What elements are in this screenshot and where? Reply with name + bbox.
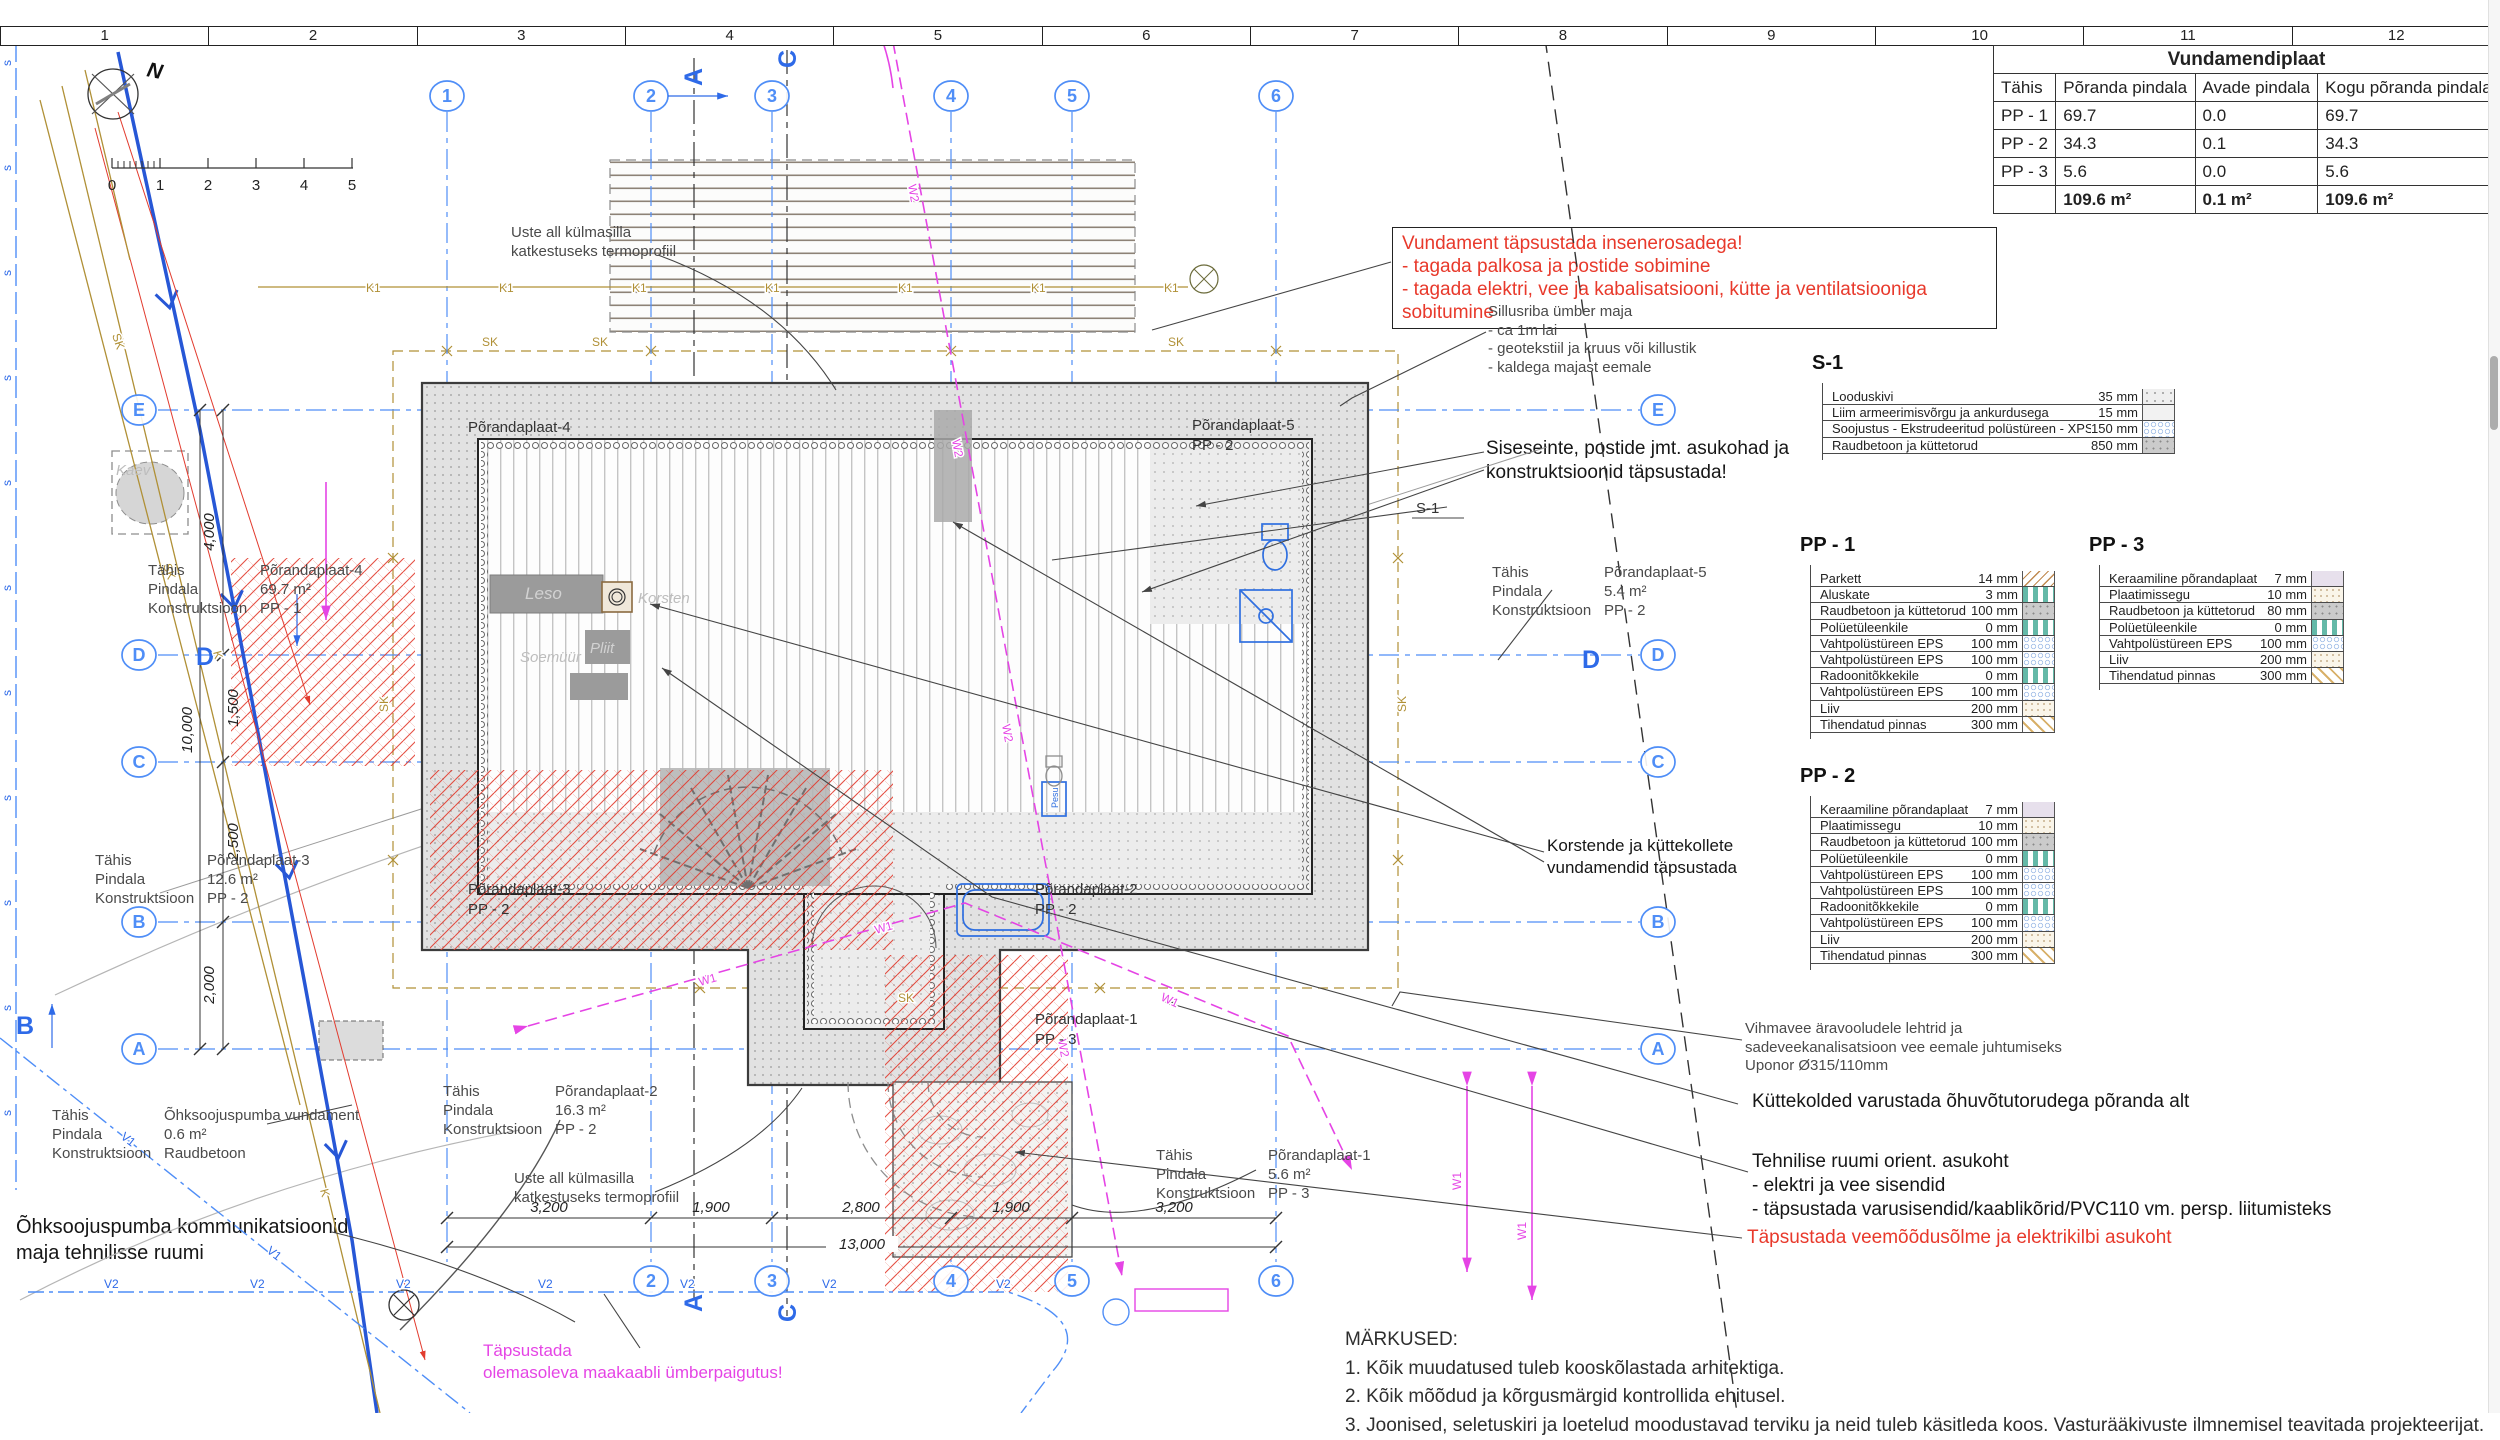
layer-row: Raudbetoon ja küttetorud850 mm: [1823, 438, 2175, 454]
north-label: N: [145, 58, 165, 84]
heat-pump-pad: [319, 1021, 383, 1060]
summary-header-row: Tähis Põranda pindala Avade pindala Kogu…: [1994, 74, 2500, 102]
grid-col-label: 6: [1271, 1271, 1281, 1291]
layer-row: Tihendatud pinnas300 mm: [1811, 717, 2055, 733]
svg-text:s: s: [0, 900, 14, 906]
slab-label-pp4: Põrandaplaat-4: [468, 419, 571, 436]
summary-totals-row: 109.6 m² 0.1 m²109.6 m²: [1994, 186, 2500, 214]
svg-text:V2: V2: [538, 1277, 553, 1291]
grid-col-label: 1: [442, 86, 452, 106]
grid-row-label: C: [133, 752, 146, 772]
room-label-soemuur: Soemüür: [520, 649, 582, 666]
material-swatch: [2142, 438, 2175, 453]
grid-col-label: 4: [946, 86, 956, 106]
material-swatch: [2142, 421, 2175, 436]
ruler-cell: 5: [833, 27, 1041, 45]
grid-col-label: 4: [946, 1271, 956, 1291]
room-label-korsten: Korsten: [638, 590, 690, 607]
summary-table-row: PP - 234.3 0.134.3: [1994, 130, 2500, 158]
grid-col-label: 5: [1067, 86, 1077, 106]
layer-row: Liiv200 mm: [1811, 701, 2055, 717]
dim-total-label: 10,000: [179, 706, 196, 753]
material-swatch: [2022, 587, 2055, 602]
scale-tick-label: 2: [204, 177, 212, 194]
ruler-cell: 10: [1875, 27, 2083, 45]
svg-text:W1: W1: [1159, 990, 1182, 1010]
material-swatch: [2022, 668, 2055, 683]
layer-row: Plaatimissegu10 mm: [2100, 587, 2344, 603]
dim-label: 2,800: [841, 1199, 880, 1216]
section-marker-c: C: [774, 50, 802, 68]
svg-text:V2: V2: [250, 1277, 265, 1291]
material-swatch: [2022, 948, 2055, 963]
dim-total-label: 13,000: [839, 1236, 886, 1253]
note-thermoprofile-bottom: Uste all külmasilla katkestuseks termopr…: [514, 1170, 679, 1207]
layer-row: Aluskate3 mm: [1811, 587, 2055, 603]
material-swatch: [2142, 405, 2175, 420]
svg-text:K1: K1: [898, 281, 913, 295]
k1-label: K1: [366, 281, 381, 295]
layer-row: Radoonitõkkekile0 mm: [1811, 668, 2055, 684]
layer-row: Vahtpolüstüreen EPS100 mm: [2100, 636, 2344, 652]
layer-row: Looduskivi35 mm: [1823, 389, 2175, 405]
layer-panel-pp2: PP - 2 Keraamiline põrandaplaat7 mm Plaa…: [1800, 765, 2052, 970]
layer-panel-s1: S-1 Looduskivi35 mm Liim armeerimisvõrgu…: [1812, 352, 2172, 460]
material-swatch: [2311, 603, 2344, 618]
svg-text:K1: K1: [632, 281, 647, 295]
layer-row: Raudbetoon ja küttetorud100 mm: [1811, 834, 2055, 850]
page-ruler: 123456789101112: [0, 26, 2500, 46]
scrollbar-thumb[interactable]: [2490, 356, 2498, 430]
grid-row-label: B: [133, 912, 146, 932]
svg-text:SK: SK: [592, 335, 608, 349]
svg-text:SK: SK: [1168, 335, 1184, 349]
svg-text:V2: V2: [396, 1277, 411, 1291]
grid-col-label: 2: [646, 1271, 656, 1291]
panel-title: PP - 1: [1800, 534, 2052, 557]
layer-row: Raudbetoon ja küttetorud100 mm: [1811, 603, 2055, 619]
scale-tick-label: 5: [348, 177, 356, 194]
layer-row: Keraamiline põrandaplaat7 mm: [1811, 802, 2055, 818]
grid-row-label: D: [133, 645, 146, 665]
material-swatch: [2022, 932, 2055, 947]
material-swatch: [2022, 915, 2055, 930]
material-swatch: [2311, 636, 2344, 651]
svg-text:s: s: [0, 480, 14, 486]
scale-tick-label: 0: [108, 177, 116, 194]
grid-col-label: 6: [1271, 86, 1281, 106]
material-swatch: [2022, 818, 2055, 833]
slab-label-pp2: Põrandaplaat-2: [1035, 881, 1138, 898]
layer-row: Plaatimissegu10 mm: [1811, 818, 2055, 834]
material-swatch: [2311, 668, 2344, 683]
scale-tick-label: 4: [300, 177, 308, 194]
material-swatch: [2022, 652, 2055, 667]
ruler-cell: 9: [1667, 27, 1875, 45]
layer-panel-pp1: PP - 1 Parkett14 mm Aluskate3 mm Raudbet…: [1800, 534, 2052, 739]
layer-row: Raudbetoon ja küttetorud80 mm: [2100, 603, 2344, 619]
room-label-pesu: Pesu: [1050, 787, 1060, 808]
svg-text:PP - 2: PP - 2: [468, 901, 509, 918]
layer-row: Vahtpolüstüreen EPS100 mm: [1811, 867, 2055, 883]
grid-row-label: D: [1652, 645, 1665, 665]
s1-callout: S-1: [1416, 500, 1439, 517]
layer-row: Parkett14 mm: [1811, 571, 2055, 587]
scale-tick-label: 3: [252, 177, 260, 194]
layer-row: Vahtpolüstüreen EPS100 mm: [1811, 652, 2055, 668]
ruler-cell: 6: [1042, 27, 1250, 45]
panel-title: PP - 2: [1800, 765, 2052, 788]
material-swatch: [2311, 620, 2344, 635]
layer-row: Liiv200 mm: [2100, 652, 2344, 668]
info-block-pp3: TähisPõrandaplaat-3Pindala12.6 m²Konstru…: [95, 851, 310, 908]
ruler-cell: 4: [625, 27, 833, 45]
info-block-pp4: TähisPõrandaplaat-4Pindala69.7 m²Konstru…: [148, 561, 363, 618]
terrace-deck: [610, 160, 1135, 332]
vertical-scrollbar[interactable]: [2488, 0, 2500, 1413]
grid-row-label: A: [1652, 1039, 1665, 1059]
svg-text:SK: SK: [898, 991, 914, 1005]
section-marker-d: D: [1582, 646, 1600, 674]
svg-text:PP - 3: PP - 3: [1035, 1031, 1076, 1048]
layer-row: Vahtpolüstüreen EPS100 mm: [1811, 684, 2055, 700]
layer-row: Liiv200 mm: [1811, 932, 2055, 948]
grid-col-label: 2: [646, 86, 656, 106]
note-sillusriba: Sillusriba ümber maja - ca 1m lai - geot…: [1488, 303, 1696, 377]
dim-label: 2,000: [201, 966, 218, 1005]
section-marker-b: B: [16, 1012, 34, 1040]
layer-row: Radoonitõkkekile0 mm: [1811, 899, 2055, 915]
w1-label: W1: [697, 970, 718, 989]
panel-title: PP - 3: [2089, 534, 2341, 557]
ruler-cell: 2: [208, 27, 416, 45]
layer-row: Tihendatud pinnas300 mm: [1811, 948, 2055, 964]
zone-pp5: [1150, 440, 1311, 624]
svg-text:s: s: [0, 585, 14, 591]
svg-text:s: s: [0, 690, 14, 696]
svg-text:s: s: [0, 795, 14, 801]
slab-label-pp1: Põrandaplaat-1: [1035, 1011, 1138, 1028]
material-swatch: [2022, 899, 2055, 914]
ruler-cell: 3: [417, 27, 625, 45]
material-swatch: [2022, 851, 2055, 866]
section-marker-a: A: [680, 68, 708, 86]
v2-label: V2: [104, 1277, 119, 1291]
layer-row: Polüetüleenkile0 mm: [1811, 851, 2055, 867]
svg-text:V2: V2: [996, 1277, 1011, 1291]
material-swatch: [2311, 652, 2344, 667]
hearth-block: [570, 673, 628, 700]
layer-row: Vahtpolüstüreen EPS100 mm: [1811, 636, 2055, 652]
summary-table-row: PP - 35.6 0.05.6: [1994, 158, 2500, 186]
grid-row-label: E: [1652, 400, 1664, 420]
section-marker-c: C: [774, 1304, 802, 1322]
material-swatch: [2022, 867, 2055, 882]
panel-title: S-1: [1812, 352, 2172, 375]
grid-row-label: A: [133, 1039, 146, 1059]
room-label-kaev: Kaev: [116, 462, 152, 479]
layer-row: Polüetüleenkile0 mm: [2100, 620, 2344, 636]
scale-tick-label: 1: [156, 177, 164, 194]
material-swatch: [2022, 717, 2055, 732]
room-label-pliit: Pliit: [590, 640, 615, 657]
layer-row: Soojustus - Ekstrudeeritud polüstüreen -…: [1823, 421, 2175, 437]
grid-row-label: C: [1652, 752, 1665, 772]
note-rainwater: Vihmavee äravooludele lehtrid ja sadevee…: [1745, 1020, 2062, 1076]
svg-text:K1: K1: [1164, 281, 1179, 295]
svg-text:K1: K1: [765, 281, 780, 295]
dim-label: 4,000: [201, 513, 218, 551]
dim-label: 1,900: [992, 1199, 1030, 1216]
layer-row: Tihendatud pinnas300 mm: [2100, 668, 2344, 684]
note-thermoprofile-top: Uste all külmasilla katkestuseks termopr…: [511, 224, 676, 261]
layer-row: Liim armeerimisvõrgu ja ankurdusega15 mm: [1823, 405, 2175, 421]
ruler-cell: 8: [1458, 27, 1666, 45]
slab-label-pp5: Põrandaplaat-5: [1192, 417, 1295, 434]
svg-text:s: s: [0, 270, 14, 276]
cad-viewport: { "ruler": {"cells": ["1","2","3","4","5…: [0, 0, 2500, 1413]
foundation-summary-table: Vundamendiplaat Tähis Põranda pindala Av…: [1993, 45, 2500, 214]
layer-row: Keraamiline põrandaplaat7 mm: [2100, 571, 2344, 587]
material-swatch: [2022, 636, 2055, 651]
info-block-pp5: TähisPõrandaplaat-5Pindala5.4 m²Konstruk…: [1492, 563, 1707, 620]
dim-label: 1,500: [225, 689, 242, 727]
korsten-chimney: [602, 582, 632, 612]
ruler-cell: 7: [1250, 27, 1458, 45]
svg-text:K1: K1: [1031, 281, 1046, 295]
material-swatch: [2022, 620, 2055, 635]
svg-text:W1: W1: [1515, 1222, 1529, 1240]
summary-table-title: Vundamendiplaat: [1994, 46, 2500, 74]
layer-panel-pp3: PP - 3 Keraamiline põrandaplaat7 mm Plaa…: [2089, 534, 2341, 690]
dim-label: 1,900: [692, 1199, 730, 1216]
layer-row: Vahtpolüstüreen EPS100 mm: [1811, 883, 2055, 899]
material-swatch: [2022, 603, 2055, 618]
stove-block: [934, 410, 972, 522]
v1-line: [0, 1038, 470, 1413]
material-swatch: [2311, 571, 2344, 586]
grid-row-label: B: [1652, 912, 1665, 932]
grid-row-label: E: [133, 400, 145, 420]
grid-col-label: 5: [1067, 1271, 1077, 1291]
ruler-cell: 12: [2292, 27, 2500, 45]
layer-row: Vahtpolüstüreen EPS100 mm: [1811, 915, 2055, 931]
material-swatch: [2022, 834, 2055, 849]
info-block-pp2: TähisPõrandaplaat-2Pindala16.3 m²Konstru…: [443, 1082, 658, 1139]
svg-text:V1: V1: [264, 1243, 284, 1263]
material-swatch: [2022, 701, 2055, 716]
info-block-pp1: TähisPõrandaplaat-1Pindala5.6 m²Konstruk…: [1156, 1146, 1371, 1203]
v2-line: [28, 1292, 1068, 1413]
svg-text:K: K: [317, 1187, 333, 1198]
boundary-s-label: s: [0, 60, 14, 66]
svg-text:s: s: [0, 1005, 14, 1011]
room-label-leso: Leso: [525, 584, 562, 603]
svg-text:V2: V2: [680, 1277, 695, 1291]
svg-text:W1: W1: [1450, 1172, 1464, 1190]
ruler-cell: 11: [2083, 27, 2291, 45]
material-swatch: [2311, 587, 2344, 602]
material-swatch: [2142, 389, 2175, 404]
section-marker-a: A: [680, 1294, 708, 1312]
grid-col-label: 3: [767, 86, 777, 106]
summary-table-row: PP - 169.7 0.069.7: [1994, 102, 2500, 130]
svg-text:PP - 2: PP - 2: [1192, 437, 1233, 454]
svg-text:s: s: [0, 375, 14, 381]
material-swatch: [2022, 883, 2055, 898]
layer-row: Polüetüleenkile0 mm: [1811, 620, 2055, 636]
svg-text:V2: V2: [822, 1277, 837, 1291]
material-swatch: [2022, 571, 2055, 586]
svg-text:s: s: [0, 1110, 14, 1116]
svg-text:SK: SK: [1395, 696, 1409, 712]
material-swatch: [2022, 802, 2055, 817]
material-swatch: [2022, 684, 2055, 699]
svg-text:s: s: [0, 165, 14, 171]
svg-text:K1: K1: [499, 281, 514, 295]
slab-label-pp3: Põrandaplaat-3: [468, 881, 571, 898]
ruler-cell: 1: [0, 27, 208, 45]
info-block-heatpump: TähisÕhksoojuspumba vundamentPindala0.6 …: [52, 1106, 359, 1163]
grid-col-label: 3: [767, 1271, 777, 1291]
note-item: 3. Joonised, seletuskiri ja loetelud moo…: [1345, 1412, 2484, 1440]
svg-text:PP - 2: PP - 2: [1035, 901, 1076, 918]
sk-label: SK: [482, 335, 498, 349]
svg-text:SK: SK: [377, 696, 391, 712]
